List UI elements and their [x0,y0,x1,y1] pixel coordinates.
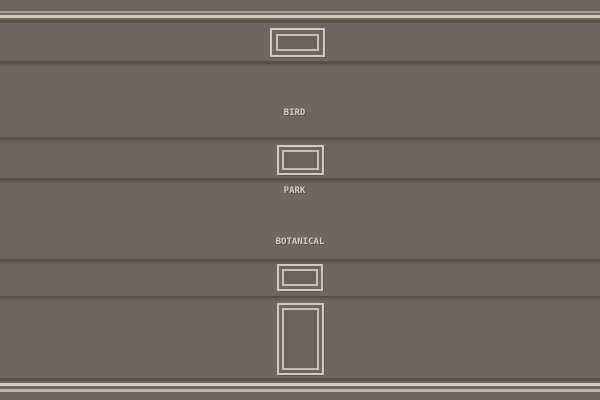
door-frame[interactable] [277,303,324,375]
baseboard-shadow-line [0,378,600,381]
baseboard-soft-line [0,389,600,392]
picture-frame-middle-canvas [282,150,319,170]
picture-frame-top[interactable] [270,28,325,57]
plaque-line: PARK [0,185,589,198]
door-frame-panel [282,308,319,370]
plaque-botanical-garden: BOTANICAL GARDEN [0,210,600,314]
top-molding-thin-line [0,11,600,13]
top-molding-shadow-line [0,20,600,23]
gallery-wall: BIRD IN THE PARK BOTANICAL GARDEN [0,0,600,400]
picture-frame-bottom-canvas [282,269,318,286]
baseboard-cream-line [0,383,600,386]
top-molding-cream-line [0,15,600,18]
plaque-line: BIRD [0,107,589,120]
picture-frame-top-canvas [276,34,319,51]
plaque-line: BOTANICAL [0,236,600,249]
picture-frame-middle[interactable] [277,145,324,175]
panel-groove-highlight [0,64,600,66]
picture-frame-bottom[interactable] [277,264,323,291]
